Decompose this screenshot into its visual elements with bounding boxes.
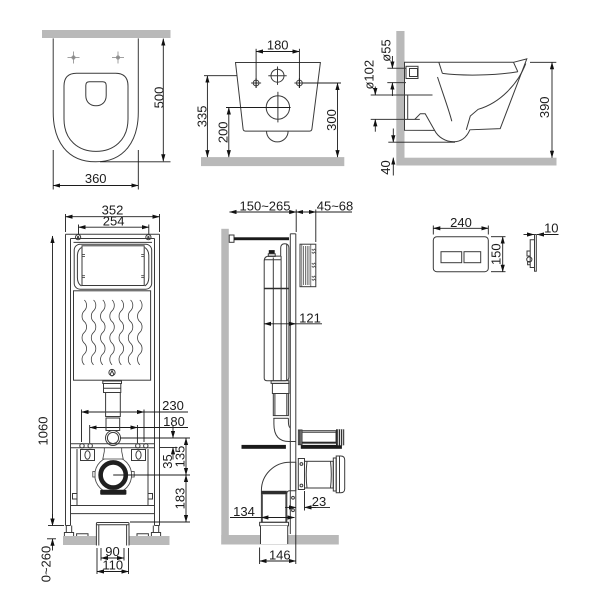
svg-text:500: 500 [152, 87, 167, 109]
svg-text:110: 110 [102, 558, 123, 573]
svg-text:200: 200 [216, 121, 231, 143]
svg-text:ø102: ø102 [362, 60, 377, 90]
svg-text:254: 254 [103, 214, 125, 229]
svg-text:10: 10 [544, 221, 558, 236]
svg-text:121: 121 [299, 310, 321, 325]
svg-text:240: 240 [450, 215, 472, 230]
svg-text:230: 230 [162, 398, 184, 413]
svg-text:1060: 1060 [36, 417, 51, 446]
svg-text:183: 183 [173, 488, 188, 510]
svg-text:150: 150 [489, 243, 504, 265]
svg-text:0~260: 0~260 [38, 546, 53, 583]
svg-text:180: 180 [163, 414, 185, 429]
svg-text:300: 300 [324, 109, 339, 131]
svg-text:180: 180 [267, 38, 289, 53]
svg-text:23: 23 [312, 494, 326, 509]
svg-text:134: 134 [233, 504, 255, 519]
svg-text:ø55: ø55 [379, 39, 394, 61]
svg-text:390: 390 [537, 96, 552, 118]
svg-text:335: 335 [194, 106, 209, 128]
svg-text:146: 146 [269, 547, 291, 562]
svg-text:45~68: 45~68 [317, 199, 354, 214]
svg-text:150~265: 150~265 [240, 199, 291, 214]
svg-text:360: 360 [85, 171, 107, 186]
svg-text:40: 40 [378, 160, 393, 174]
svg-text:135: 135 [173, 446, 188, 468]
